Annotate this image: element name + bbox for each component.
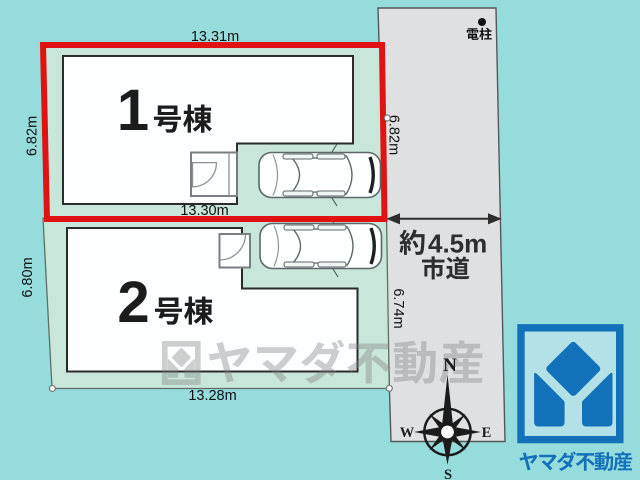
svg-text:6.82m: 6.82m — [25, 116, 41, 156]
svg-text:W: W — [400, 425, 415, 441]
svg-text:13.30m: 13.30m — [180, 203, 228, 219]
svg-text:E: E — [482, 425, 492, 441]
svg-text:1: 1 — [117, 78, 149, 143]
svg-text:N: N — [443, 355, 457, 376]
svg-text:4.5m: 4.5m — [428, 229, 487, 259]
svg-text:6.74m: 6.74m — [390, 288, 406, 328]
svg-text:2: 2 — [117, 270, 149, 335]
svg-text:6.80m: 6.80m — [20, 257, 36, 297]
svg-text:S: S — [444, 467, 452, 480]
svg-text:13.31m: 13.31m — [191, 29, 239, 45]
svg-text:13.28m: 13.28m — [188, 388, 236, 404]
